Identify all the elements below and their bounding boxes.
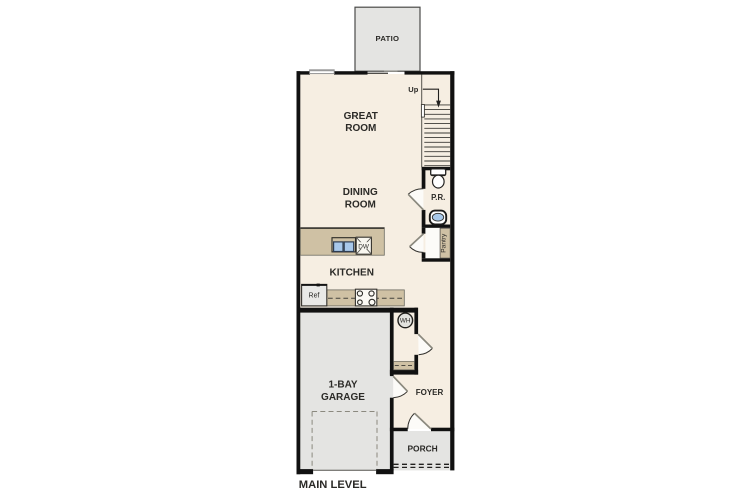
svg-text:FOYER: FOYER xyxy=(416,388,444,397)
svg-text:Pantry: Pantry xyxy=(440,233,447,253)
svg-text:ROOM: ROOM xyxy=(345,123,376,134)
svg-text:Ref: Ref xyxy=(309,293,320,300)
svg-text:PORCH: PORCH xyxy=(407,444,437,454)
svg-text:P.R.: P.R. xyxy=(431,193,445,202)
svg-text:1-BAY: 1-BAY xyxy=(328,380,357,391)
svg-text:PATIO: PATIO xyxy=(375,34,399,43)
svg-text:WH: WH xyxy=(400,318,411,325)
svg-text:GREAT: GREAT xyxy=(344,111,378,122)
svg-text:ROOM: ROOM xyxy=(345,200,376,211)
svg-text:DINING: DINING xyxy=(343,187,378,198)
svg-text:GARAGE: GARAGE xyxy=(321,392,365,403)
svg-text:Up: Up xyxy=(408,85,418,94)
svg-text:KITCHEN: KITCHEN xyxy=(329,268,373,279)
svg-text:DW: DW xyxy=(358,244,370,251)
svg-text:MAIN LEVEL: MAIN LEVEL xyxy=(299,479,367,491)
